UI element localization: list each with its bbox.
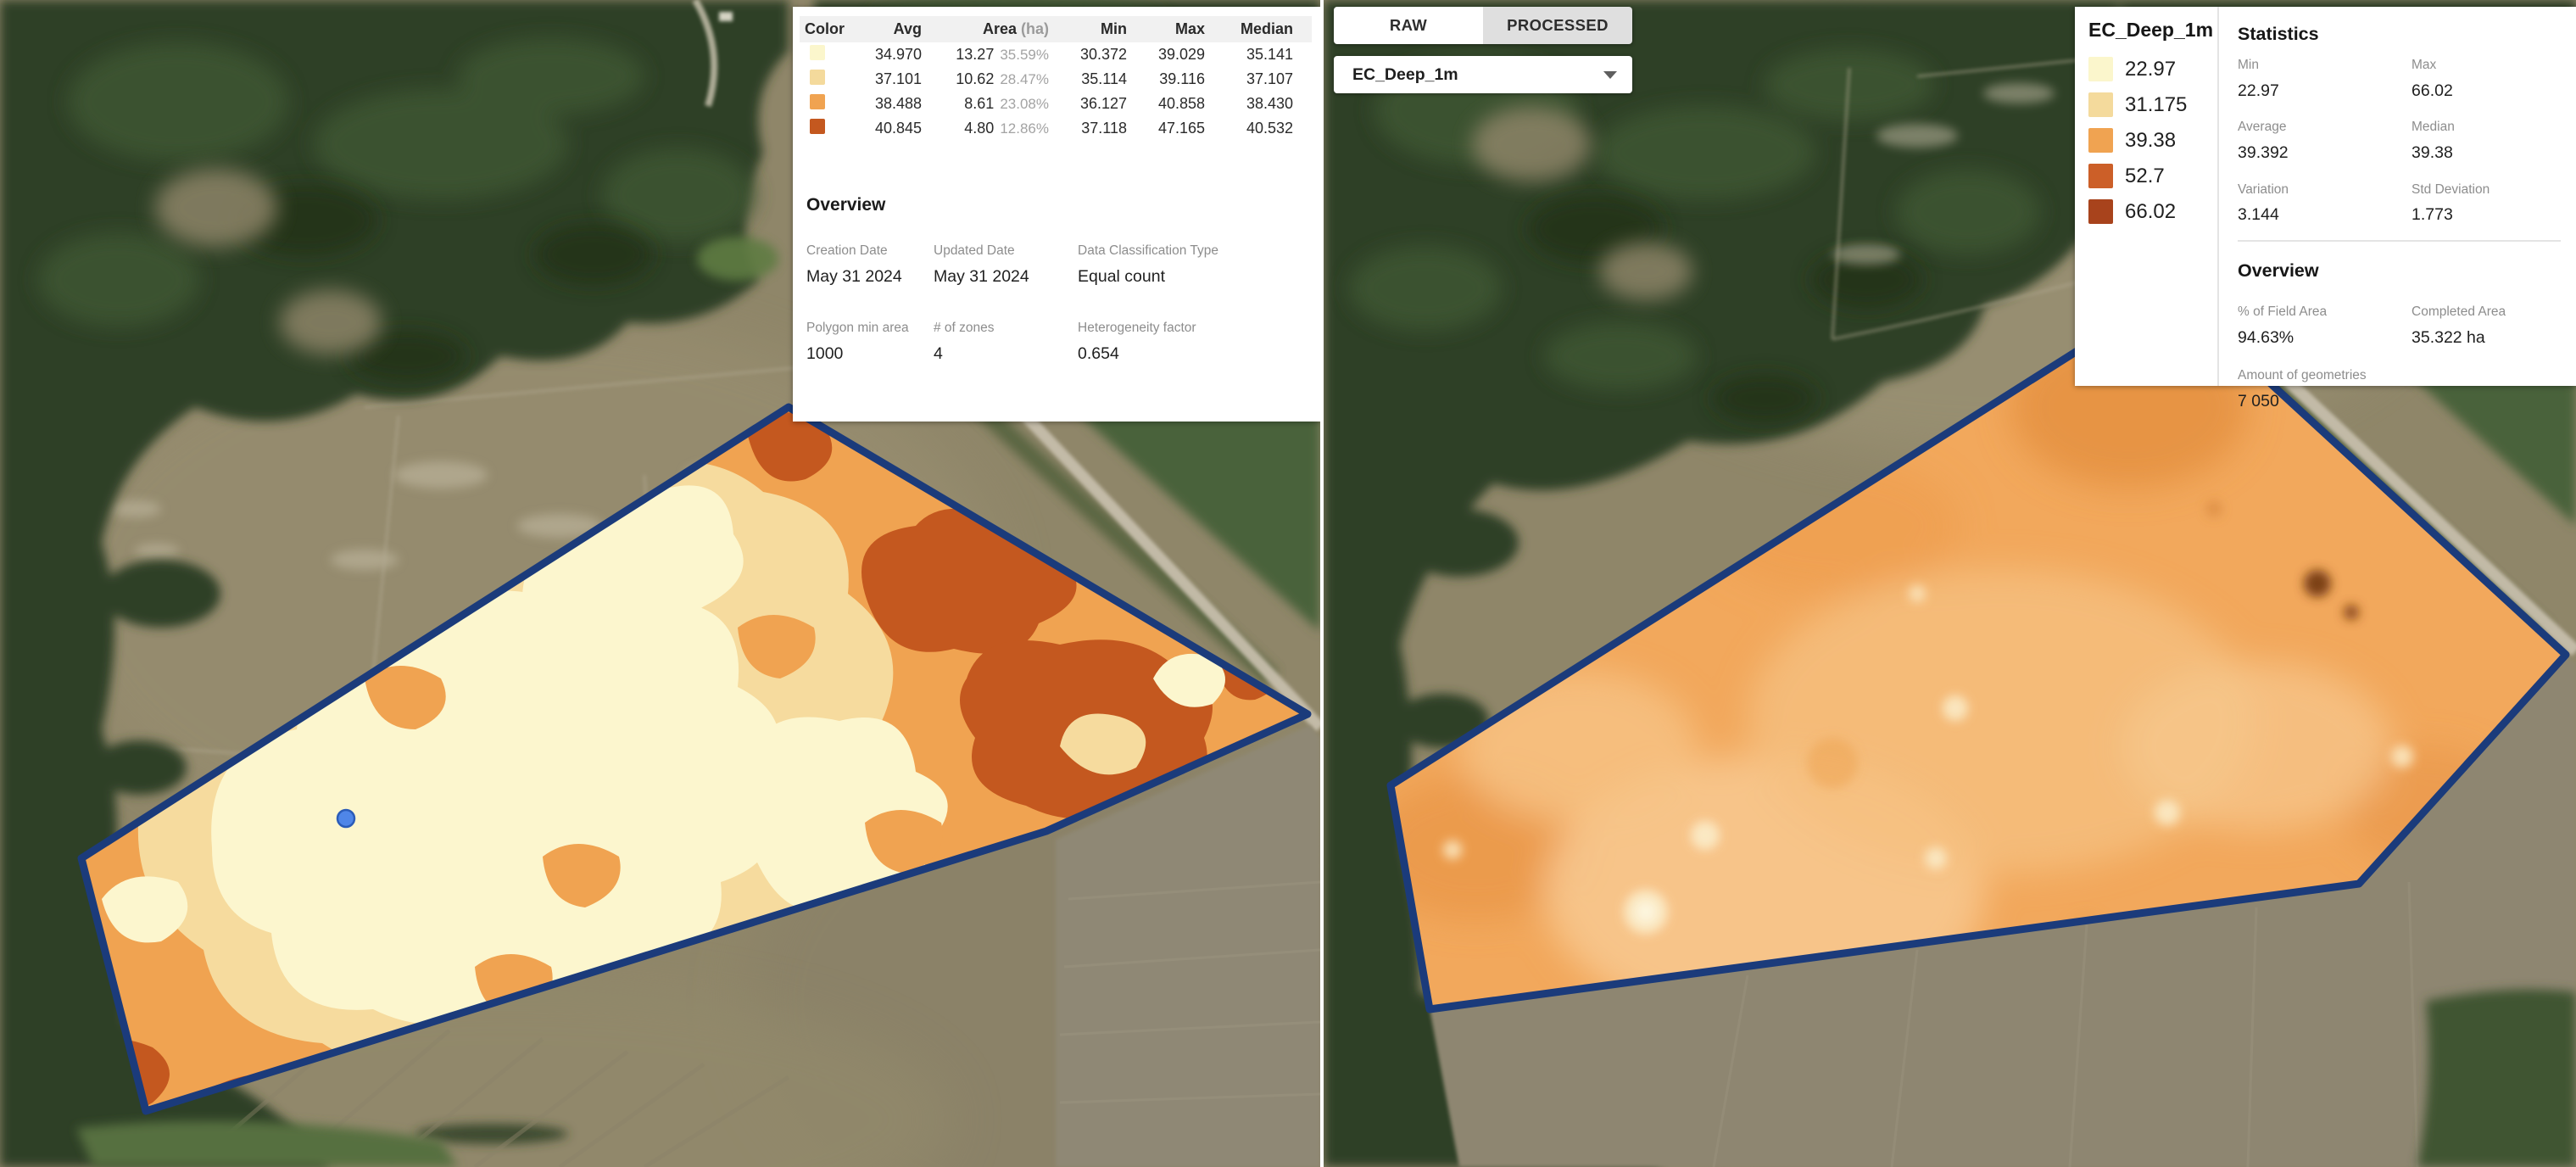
stat-field: Std Deviation 1.773 bbox=[2412, 181, 2561, 226]
zones-map-panel: Color Avg Area (ha) Min Max Median 34.97… bbox=[0, 0, 1320, 1167]
col-color: Color bbox=[800, 20, 847, 38]
stat-field: Amount of geometries 7 050 bbox=[2238, 367, 2412, 412]
zone-color-swatch bbox=[810, 94, 825, 109]
cell-min: 30.372 bbox=[1049, 46, 1127, 64]
legend-item: 39.38 bbox=[2088, 128, 2217, 153]
overview-field: Polygon min area 1000 bbox=[806, 320, 925, 365]
table-row: 37.101 10.6228.47% 35.114 39.116 37.107 bbox=[800, 67, 1312, 92]
zone-color-swatch bbox=[810, 45, 825, 60]
stat-field: Completed Area 35.322 ha bbox=[2412, 304, 2561, 349]
cell-max: 39.116 bbox=[1127, 70, 1205, 88]
legend-item: 22.97 bbox=[2088, 57, 2217, 81]
col-avg: Avg bbox=[847, 20, 922, 38]
tab-processed[interactable]: PROCESSED bbox=[1483, 7, 1632, 44]
overview-field: Data Classification Type Equal count bbox=[1078, 243, 1307, 288]
processed-map-panel: RAW PROCESSED EC_Deep_1m EC_Deep_1m 22.9… bbox=[1324, 0, 2576, 1167]
cell-min: 37.118 bbox=[1049, 120, 1127, 137]
cell-max: 39.029 bbox=[1127, 46, 1205, 64]
stat-field: Median 39.38 bbox=[2412, 119, 2561, 164]
legend-color-swatch bbox=[2088, 57, 2113, 81]
overview-field: Updated Date May 31 2024 bbox=[934, 243, 1069, 288]
cell-median: 37.107 bbox=[1205, 70, 1293, 88]
cell-avg: 37.101 bbox=[847, 70, 922, 88]
ec-statistics-card: EC_Deep_1m 22.97 31.175 39.38 bbox=[2075, 7, 2576, 386]
statistics-overview-title: Overview bbox=[2238, 260, 2561, 282]
cell-min: 35.114 bbox=[1049, 70, 1127, 88]
divider bbox=[2238, 240, 2561, 242]
table-row: 38.488 8.6123.08% 36.127 40.858 38.430 bbox=[800, 92, 1312, 116]
col-min: Min bbox=[1049, 20, 1127, 38]
stat-field: Variation 3.144 bbox=[2238, 181, 2412, 226]
cell-area: 8.6123.08% bbox=[922, 95, 1049, 113]
overview-field: # of zones 4 bbox=[934, 320, 1069, 365]
table-row: 34.970 13.2735.59% 30.372 39.029 35.141 bbox=[800, 42, 1312, 67]
stat-field: Max 66.02 bbox=[2412, 57, 2561, 102]
zones-stats-card: Color Avg Area (ha) Min Max Median 34.97… bbox=[793, 7, 1320, 422]
legend-color-swatch bbox=[2088, 92, 2113, 117]
stat-field: % of Field Area 94.63% bbox=[2238, 304, 2412, 349]
field-analysis-app: Color Avg Area (ha) Min Max Median 34.97… bbox=[0, 0, 2576, 1167]
ec-legend: EC_Deep_1m 22.97 31.175 39.38 bbox=[2075, 7, 2219, 386]
tab-raw[interactable]: RAW bbox=[1334, 7, 1483, 44]
layer-select-dropdown[interactable]: EC_Deep_1m bbox=[1334, 56, 1632, 93]
cell-max: 47.165 bbox=[1127, 120, 1205, 137]
zone-color-swatch bbox=[810, 70, 825, 85]
zone-color-swatch bbox=[810, 119, 825, 134]
zones-table: Color Avg Area (ha) Min Max Median 34.97… bbox=[800, 16, 1312, 141]
legend-color-swatch bbox=[2088, 199, 2113, 224]
cell-avg: 40.845 bbox=[847, 120, 922, 137]
cell-median: 38.430 bbox=[1205, 95, 1293, 113]
cell-area: 4.8012.86% bbox=[922, 120, 1049, 137]
legend-item: 52.7 bbox=[2088, 164, 2217, 188]
cell-area: 10.6228.47% bbox=[922, 70, 1049, 88]
cell-max: 40.858 bbox=[1127, 95, 1205, 113]
zones-table-header: Color Avg Area (ha) Min Max Median bbox=[800, 16, 1312, 42]
cell-avg: 38.488 bbox=[847, 95, 922, 113]
table-row: 40.845 4.8012.86% 37.118 47.165 40.532 bbox=[800, 116, 1312, 141]
chevron-down-icon bbox=[1603, 71, 1617, 79]
ec-statistics: Statistics Min 22.97 Max 66.02 Average 3… bbox=[2219, 7, 2576, 386]
cell-avg: 34.970 bbox=[847, 46, 922, 64]
col-max: Max bbox=[1127, 20, 1205, 38]
stat-field: Min 22.97 bbox=[2238, 57, 2412, 102]
layer-select-value: EC_Deep_1m bbox=[1352, 65, 1458, 85]
legend-color-swatch bbox=[2088, 164, 2113, 188]
cell-median: 35.141 bbox=[1205, 46, 1293, 64]
col-area: Area (ha) bbox=[922, 20, 1049, 38]
overview-title: Overview bbox=[806, 195, 1307, 215]
legend-title: EC_Deep_1m bbox=[2088, 19, 2217, 42]
legend-item: 66.02 bbox=[2088, 199, 2217, 224]
col-area-unit: (ha) bbox=[1021, 20, 1049, 37]
legend-item: 31.175 bbox=[2088, 92, 2217, 117]
cell-min: 36.127 bbox=[1049, 95, 1127, 113]
col-median: Median bbox=[1205, 20, 1293, 38]
cell-area: 13.2735.59% bbox=[922, 46, 1049, 64]
overview-field: Creation Date May 31 2024 bbox=[806, 243, 925, 288]
cell-median: 40.532 bbox=[1205, 120, 1293, 137]
overview-field: Heterogeneity factor 0.654 bbox=[1078, 320, 1307, 365]
stat-field: Average 39.392 bbox=[2238, 119, 2412, 164]
statistics-title: Statistics bbox=[2238, 24, 2561, 45]
map-marker-dot[interactable] bbox=[337, 810, 354, 827]
legend-color-swatch bbox=[2088, 128, 2113, 153]
raw-processed-tabs: RAW PROCESSED bbox=[1334, 7, 1632, 44]
